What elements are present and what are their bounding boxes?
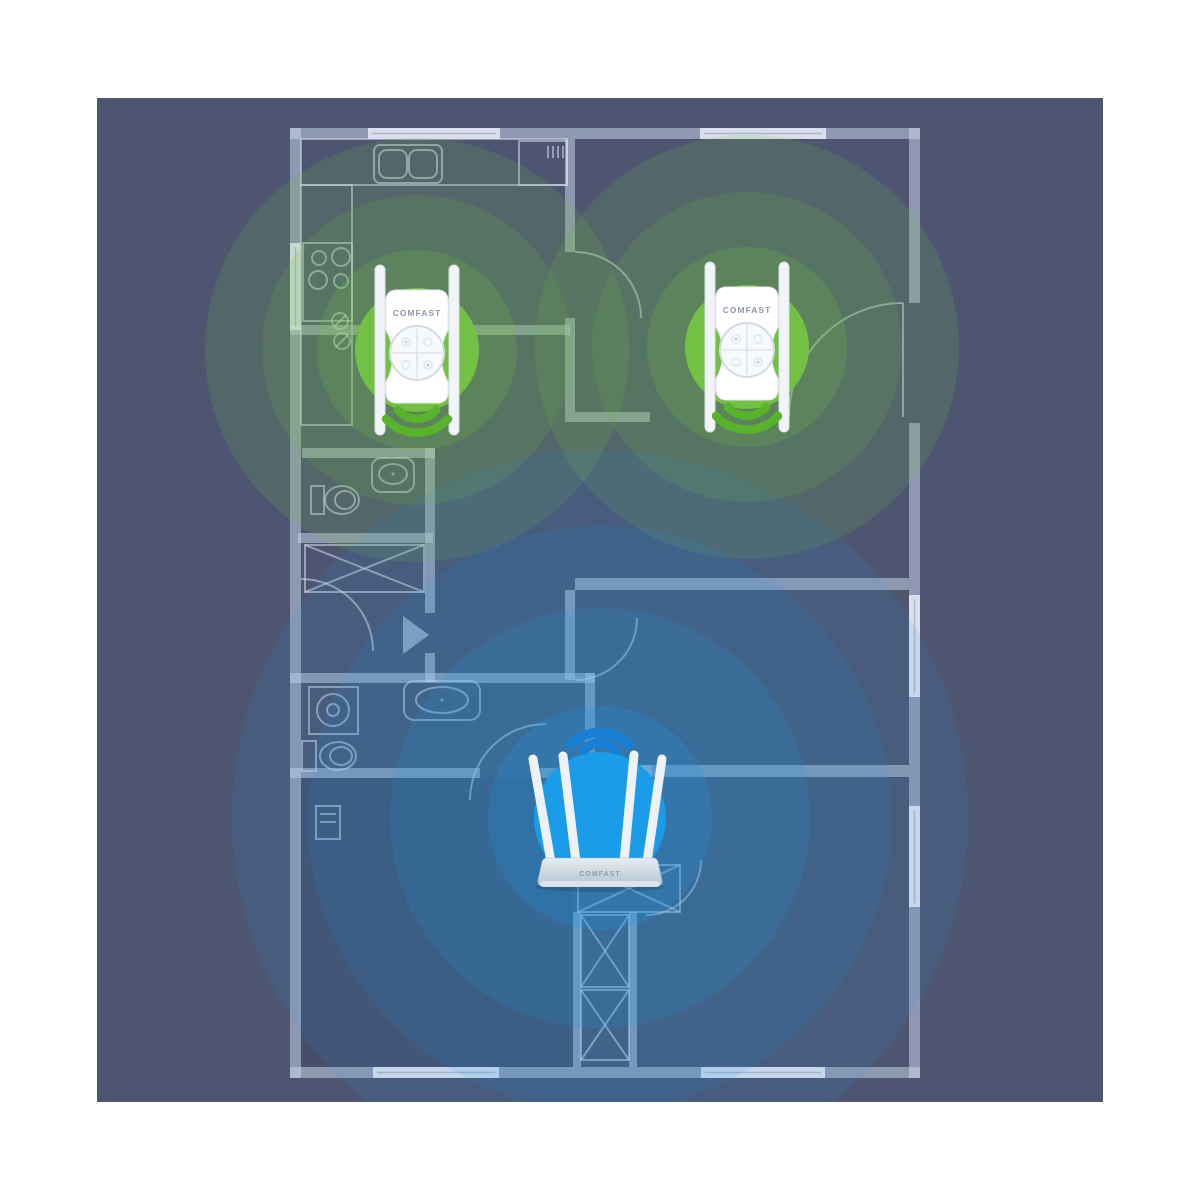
illustration-stage: COMFAST bbox=[0, 0, 1200, 1200]
router-coverage-layer bbox=[232, 450, 968, 1186]
brand-label: COMFAST bbox=[579, 871, 620, 878]
router-base bbox=[540, 881, 660, 887]
wifi-coverage-illustration: COMFAST bbox=[0, 0, 1200, 1200]
